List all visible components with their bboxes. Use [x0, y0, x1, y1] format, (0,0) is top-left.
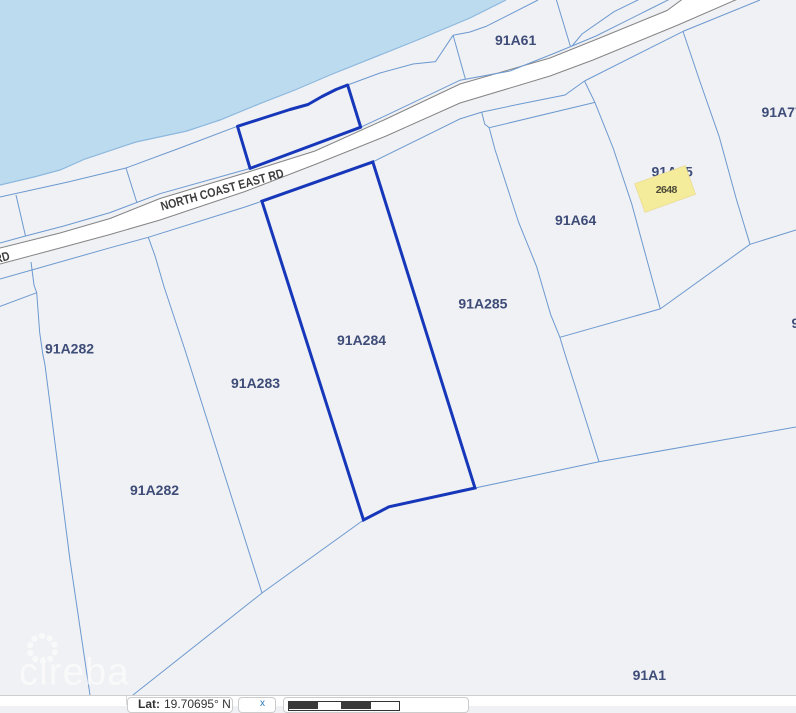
svg-text:91A283: 91A283 [231, 375, 280, 391]
svg-text:91A284: 91A284 [337, 332, 386, 348]
svg-text:91A77: 91A77 [762, 104, 796, 120]
svg-text:91A64: 91A64 [555, 212, 596, 228]
svg-text:91A282: 91A282 [130, 482, 179, 498]
svg-text:91A: 91A [792, 315, 796, 331]
svg-text:91A61: 91A61 [495, 32, 536, 48]
svg-text:cireba: cireba [19, 652, 130, 694]
svg-text:91A282: 91A282 [45, 341, 94, 357]
svg-text:2648: 2648 [656, 184, 678, 196]
svg-text:91A285: 91A285 [458, 296, 507, 312]
svg-text:91A1: 91A1 [633, 667, 667, 683]
